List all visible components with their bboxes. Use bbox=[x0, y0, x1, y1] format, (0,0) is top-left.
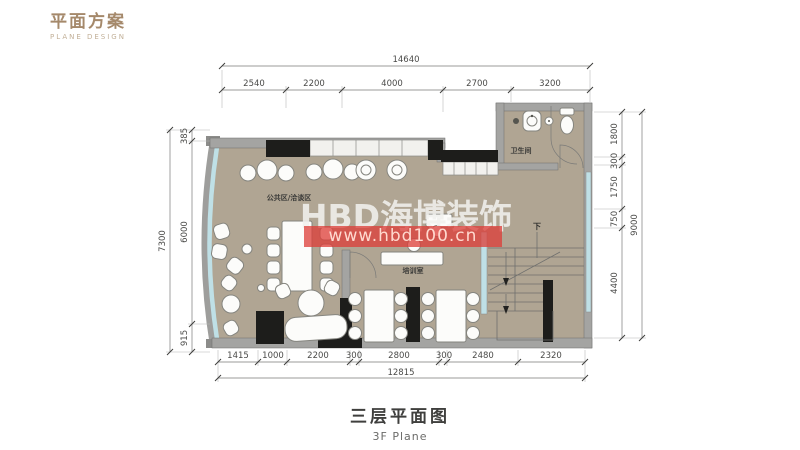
caption-subtitle: 3F Plane bbox=[0, 430, 800, 443]
caption: 三层平面图 3F Plane bbox=[0, 402, 800, 443]
dim-bottom-seg-1: 1000 bbox=[262, 351, 284, 361]
floor-plan-drawing: 公共区/洽谈区 培训室 卫生间 下 14640 2540 2200 400 bbox=[0, 0, 800, 450]
stair-direction-label: 下 bbox=[533, 222, 541, 231]
dim-top-seg-2: 4000 bbox=[381, 79, 403, 89]
dim-bottom-seg-0: 1415 bbox=[227, 351, 249, 361]
dim-right-total: 9000 bbox=[630, 214, 640, 236]
dim-bottom-seg-6: 2480 bbox=[472, 351, 494, 361]
dim-top-seg-0: 2540 bbox=[243, 79, 265, 89]
dim-right-seg-4: 4400 bbox=[610, 272, 620, 294]
dim-top-total: 14640 bbox=[392, 55, 419, 65]
room-label-training: 培训室 bbox=[403, 266, 424, 275]
dim-bottom-seg-3: 300 bbox=[346, 351, 362, 361]
dim-bottom-total: 12815 bbox=[387, 368, 414, 378]
dim-top-seg-4: 3200 bbox=[539, 79, 561, 89]
dimensions-right: 1800 300 1750 750 4400 9000 bbox=[594, 109, 646, 341]
room-label-bathroom: 卫生间 bbox=[511, 146, 532, 155]
dim-left-seg-1: 6000 bbox=[180, 221, 190, 243]
dim-left-seg-0: 385 bbox=[180, 128, 190, 144]
toilet-icon bbox=[560, 108, 574, 134]
dim-top-seg-1: 2200 bbox=[303, 79, 325, 89]
dim-bottom-seg-2: 2200 bbox=[307, 351, 329, 361]
dim-bottom-seg-4: 2800 bbox=[388, 351, 410, 361]
room-label-public: 公共区/洽谈区 bbox=[267, 193, 312, 202]
dim-bottom-seg-5: 300 bbox=[436, 351, 452, 361]
dim-right-seg-2: 1750 bbox=[610, 176, 620, 198]
dim-bottom-seg-7: 2320 bbox=[540, 351, 562, 361]
dimensions-bottom: 1415 1000 2200 300 2800 300 2480 2320 12… bbox=[215, 350, 588, 382]
dim-right-seg-0: 1800 bbox=[610, 123, 620, 145]
canvas: 平面方案 PLANE DESIGN bbox=[0, 0, 800, 450]
caption-title: 三层平面图 bbox=[0, 402, 800, 427]
dim-left-seg-2: 915 bbox=[180, 330, 190, 346]
dim-right-seg-1: 300 bbox=[610, 153, 620, 169]
dim-right-seg-3: 750 bbox=[610, 211, 620, 227]
dim-left-total: 7300 bbox=[158, 230, 168, 252]
dim-top-seg-3: 2700 bbox=[466, 79, 488, 89]
